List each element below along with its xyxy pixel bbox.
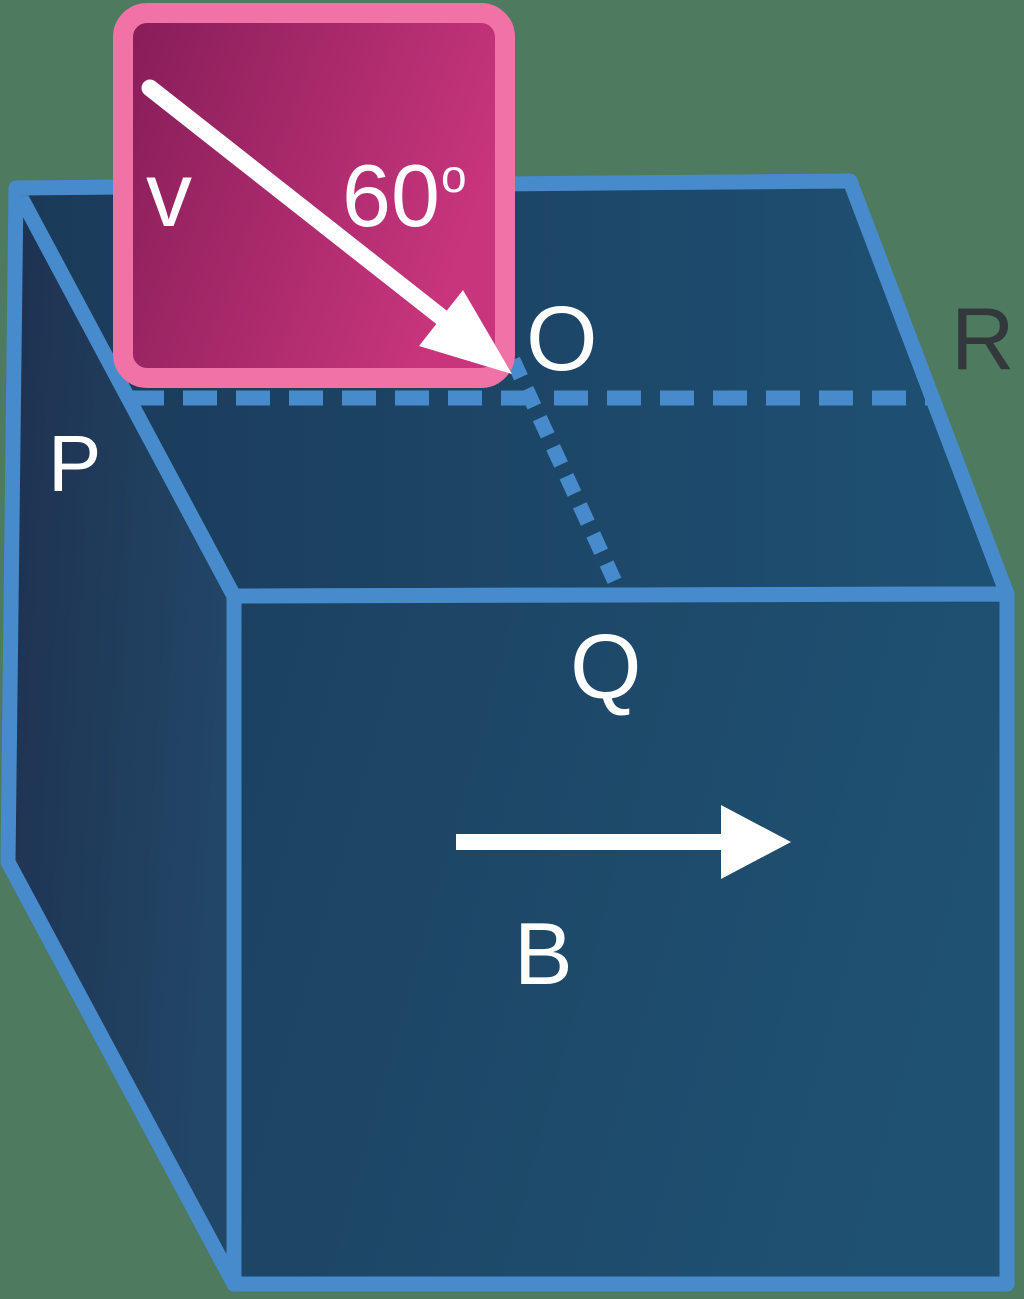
point-label-P: P: [48, 419, 101, 508]
point-label-O: O: [526, 288, 598, 390]
angle-label: 60: [342, 146, 440, 245]
point-label-R: R: [951, 289, 1015, 388]
diagram-canvas: v 60 o O P Q R B: [0, 0, 1024, 1299]
velocity-label: v: [146, 144, 192, 246]
point-label-Q: Q: [570, 616, 642, 718]
angle-degree-mark: o: [441, 150, 467, 202]
field-label-B: B: [514, 904, 573, 1003]
diagram-stage: v 60 o O P Q R B: [0, 0, 1024, 1299]
